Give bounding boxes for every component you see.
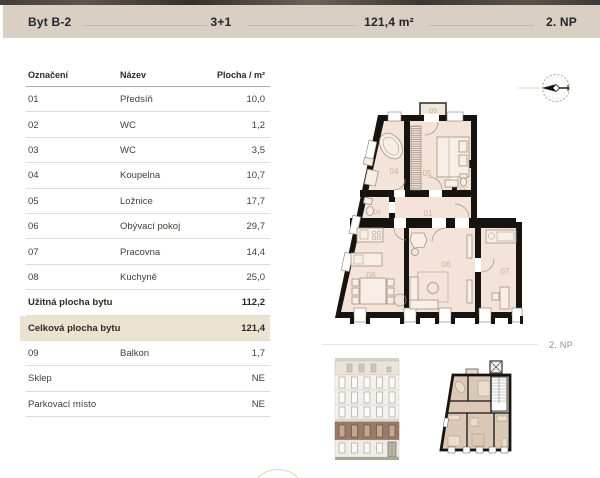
room-name: Pracovna	[120, 247, 209, 258]
room-area-value: 10,7	[209, 170, 265, 181]
header-divider	[247, 25, 356, 26]
room-name: WC	[120, 120, 209, 131]
area-table-rows: 01Předsíň10,002WC1,203WC3,504Koupelna10,…	[20, 87, 270, 417]
room-code: 05	[28, 196, 120, 207]
table-row: 03WC3,5	[20, 138, 270, 163]
room-code: 03	[28, 145, 120, 156]
room-code: 09	[28, 348, 120, 359]
table-row: 08Kuchyně25,0	[20, 265, 270, 290]
bed-icon	[437, 137, 469, 177]
room-label-04: 04	[390, 167, 399, 176]
row-label: Sklep	[28, 373, 209, 384]
table-row: 01Předsíň10,0	[20, 87, 270, 112]
row-label: Celková plocha bytu	[28, 323, 209, 334]
room-label-07: 07	[500, 266, 510, 276]
toilet-icon	[460, 174, 467, 186]
radiator-icon	[467, 235, 472, 258]
row-label: Užitná plocha bytu	[28, 297, 209, 308]
highlighted-floor	[335, 422, 399, 440]
floor-label: 2. NP	[549, 340, 573, 350]
section-divider	[322, 344, 538, 345]
room-name: WC	[120, 145, 209, 156]
washbasin-icon	[363, 197, 372, 205]
upper-floors	[335, 375, 399, 419]
table-row: 04Koupelna10,7	[20, 163, 270, 188]
table-row: 07Pracovna14,4	[20, 239, 270, 264]
room-area-value: 10,0	[209, 94, 265, 105]
row-label: Parkovací místo	[28, 399, 209, 410]
room-area-value: 17,7	[209, 196, 265, 207]
elevator-shaft	[490, 361, 502, 373]
header-bar: Byt B-2 3+1 121,4 m² 2. NP	[3, 5, 600, 38]
radiator-icon	[467, 280, 472, 303]
room-area-value: NE	[209, 373, 265, 384]
table-row: 02WC1,2	[20, 112, 270, 137]
room-name: Předsíň	[120, 94, 209, 105]
room-area-value: 3,5	[209, 145, 265, 156]
room-name: Kuchyně	[120, 272, 209, 283]
mini-staircase	[491, 377, 507, 411]
washbasin-icon	[363, 157, 373, 166]
room-name: Obývací pokoj	[120, 221, 209, 232]
room-area-value: 112,2	[209, 297, 265, 308]
key-plan-drawing	[436, 358, 528, 462]
header-divider	[429, 25, 534, 26]
room-code: 02	[28, 120, 120, 131]
room-label-01: 01	[424, 209, 433, 218]
room-code: 07	[28, 247, 120, 258]
table-row: 06Obývací pokoj29,7	[20, 214, 270, 239]
room-area-value: 29,7	[209, 221, 265, 232]
room-label-09: 09	[429, 106, 437, 115]
column-header-area: Plocha / m²	[209, 70, 265, 80]
table-header-row: Označení Název Plocha / m²	[20, 63, 270, 87]
room-area-value: NE	[209, 399, 265, 410]
unit-layout: 3+1	[181, 15, 261, 29]
room-label-08: 08	[366, 270, 376, 280]
unit-floor: 2. NP	[546, 15, 577, 29]
room-name: Koupelna	[120, 170, 209, 181]
dining-table-icon	[352, 278, 394, 304]
room-name: Ložnice	[120, 196, 209, 207]
room-label-05: 05	[423, 169, 432, 178]
room-name: Balkon	[120, 348, 209, 359]
study-counter-icon	[486, 230, 516, 243]
room-label-03: 03	[373, 209, 381, 216]
watermark-circle	[249, 469, 307, 478]
ground-floor	[335, 440, 399, 457]
room-code: 06	[28, 221, 120, 232]
unit-area: 121,4 m²	[344, 15, 434, 29]
room-area-value: 121,4	[209, 323, 265, 334]
room-label-02: 02	[460, 186, 467, 192]
room-area-value: 1,2	[209, 120, 265, 131]
kitchen-counter-icon	[357, 228, 383, 242]
room-code: 01	[28, 94, 120, 105]
table-row: Celková plocha bytu121,4	[20, 316, 270, 341]
room-label-06: 06	[441, 259, 451, 269]
table-row: Parkovací místoNE	[20, 392, 270, 417]
room-area-value: 25,0	[209, 272, 265, 283]
main-floor-plan: 09 04 05 02 03 01 08 06 07	[325, 95, 550, 335]
floor-plan-sheet: Byt B-2 3+1 121,4 m² 2. NP Označení Náze…	[0, 0, 600, 478]
table-row: SklepNE	[20, 366, 270, 391]
table-row: 05Ložnice17,7	[20, 189, 270, 214]
table-row: 09Balkon1,7	[20, 341, 270, 366]
room-area-value: 14,4	[209, 247, 265, 258]
room-code: 08	[28, 272, 120, 283]
column-header-code: Označení	[28, 70, 120, 80]
bedside-table-icon	[445, 180, 458, 187]
room-area-table: Označení Název Plocha / m² 01Předsíň10,0…	[20, 63, 270, 417]
room-area-value: 1,7	[209, 348, 265, 359]
unit-title: Byt B-2	[28, 15, 71, 29]
room-code: 04	[28, 170, 120, 181]
building-facade-drawing	[332, 356, 402, 460]
column-header-name: Název	[120, 70, 209, 80]
kitchen-island-icon	[351, 253, 382, 266]
wardrobe-icon	[411, 126, 421, 190]
table-row: Užitná plocha bytu112,2	[20, 290, 270, 315]
